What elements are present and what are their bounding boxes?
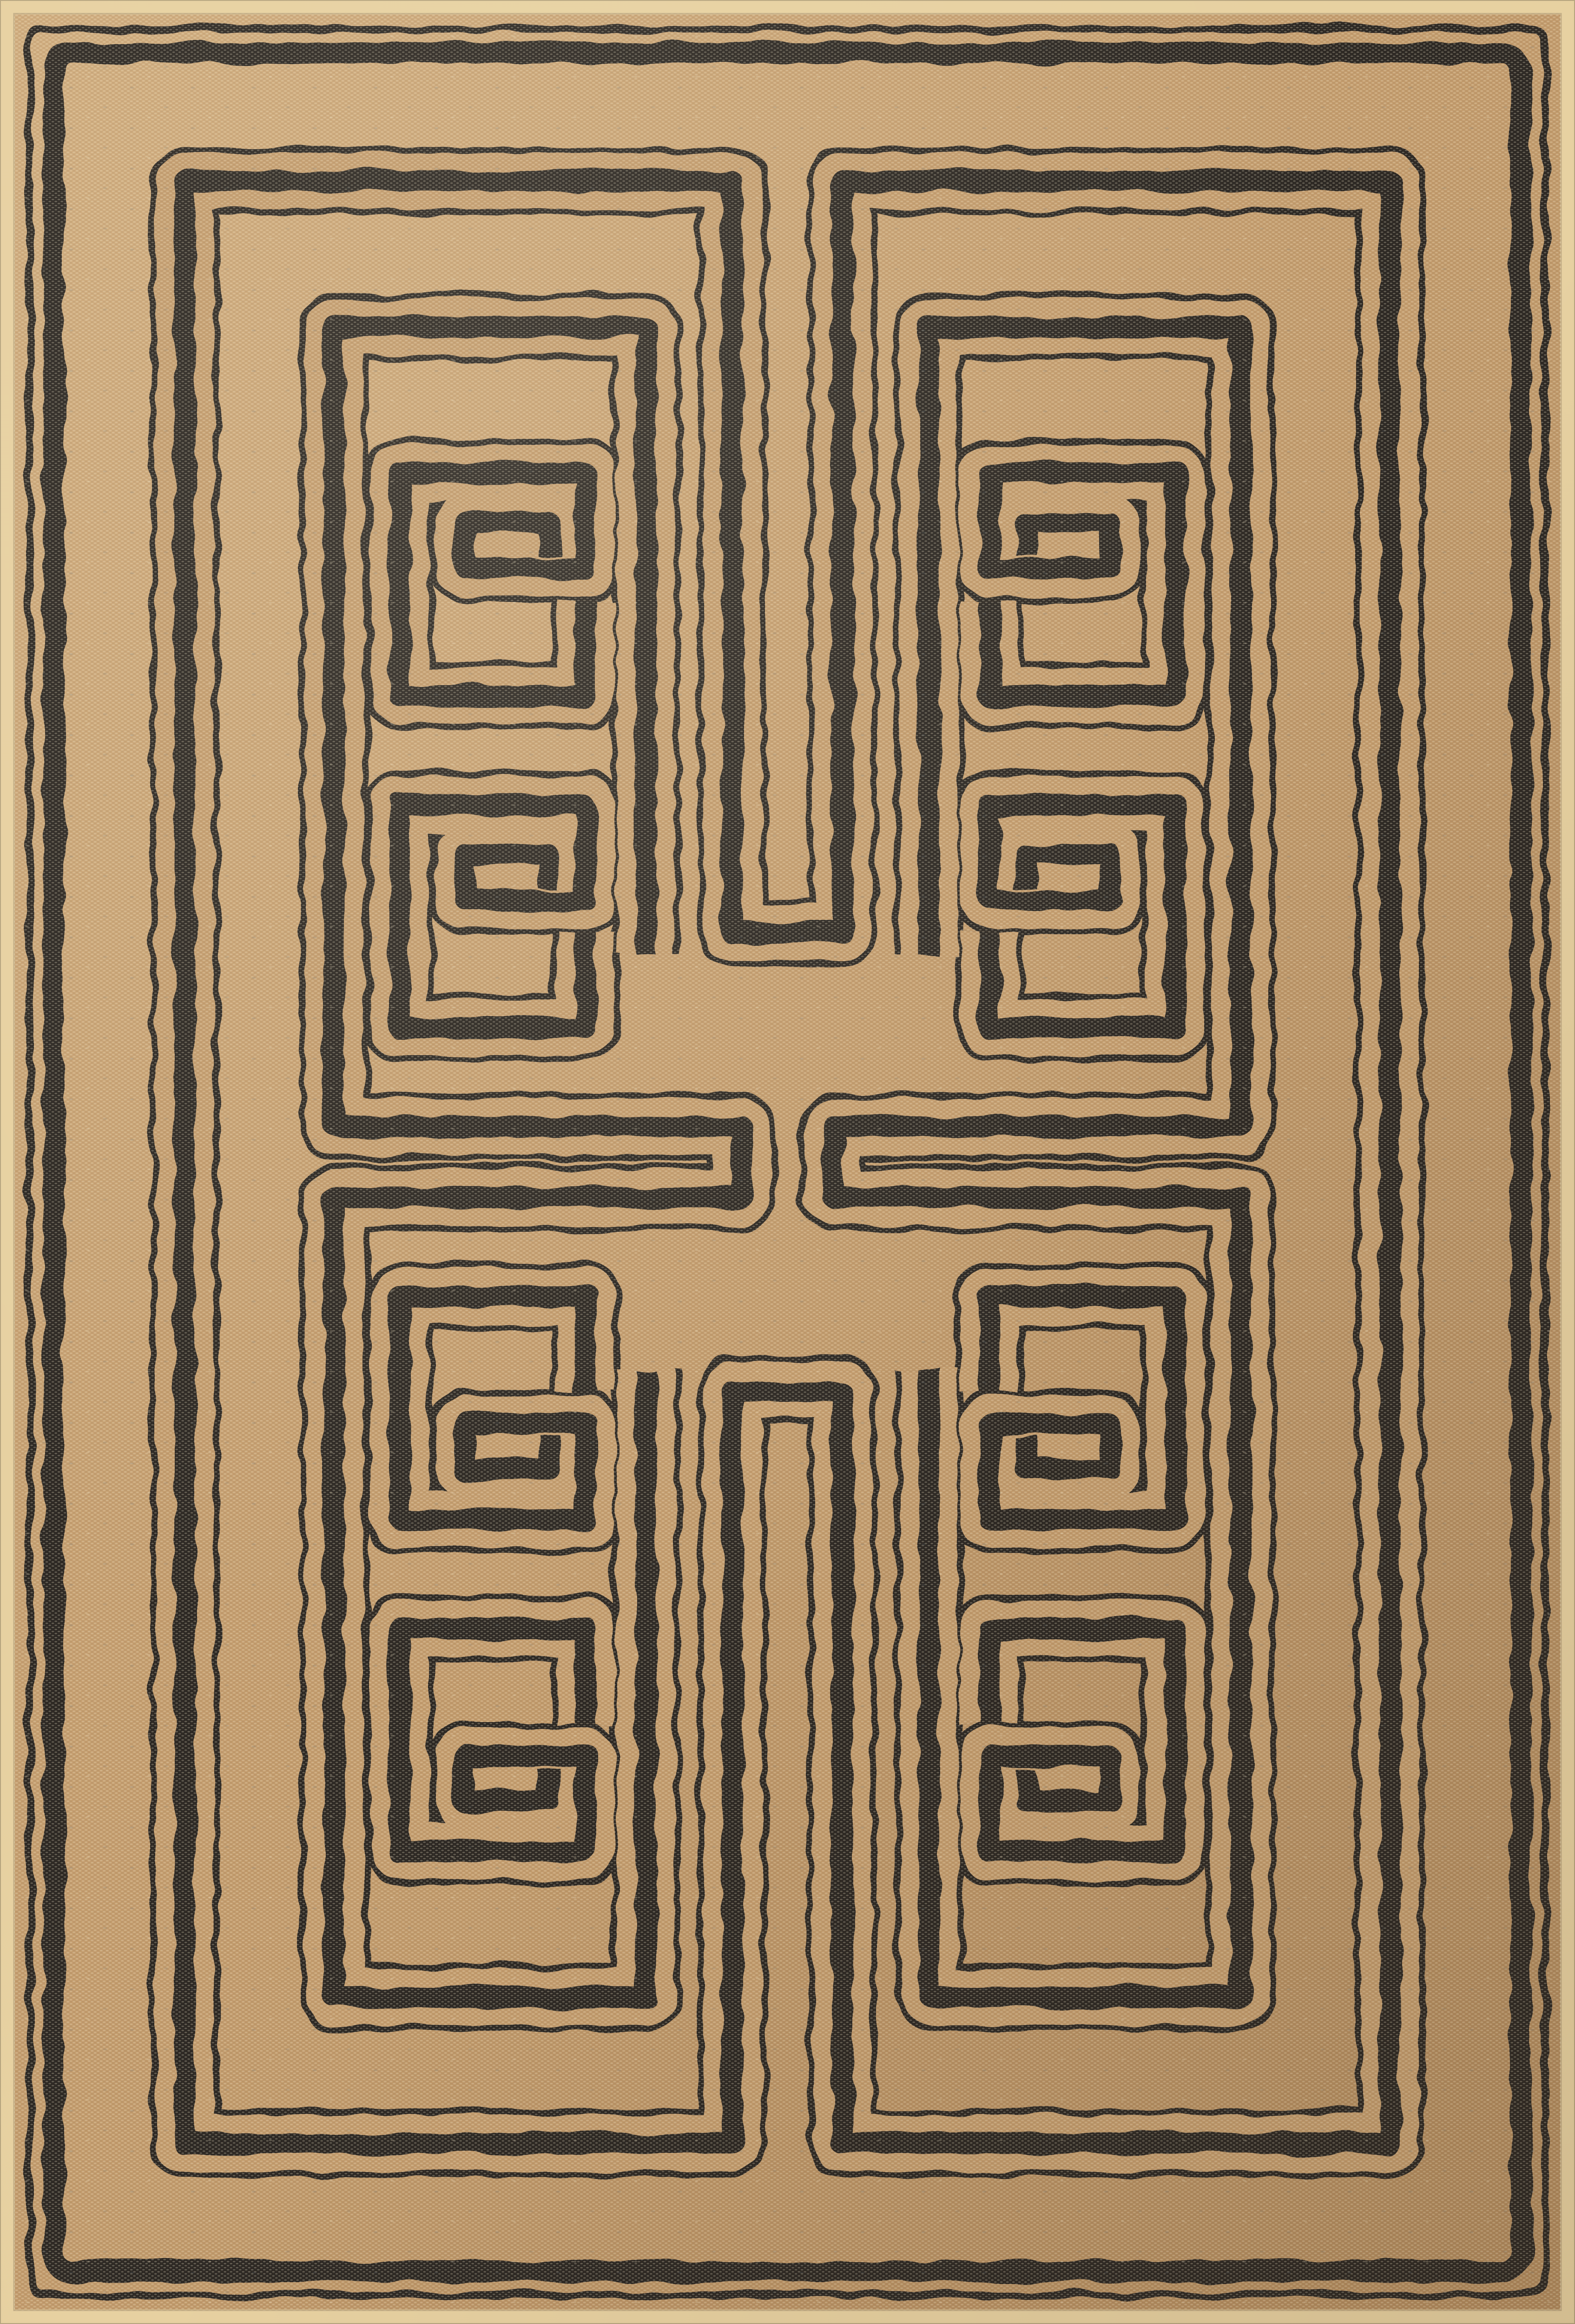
rug-photo: Top-down photograph of a tan flatweave r…	[0, 0, 1575, 2324]
rug-image-canvas	[0, 0, 1575, 2324]
lighting-shade	[0, 0, 1575, 2324]
